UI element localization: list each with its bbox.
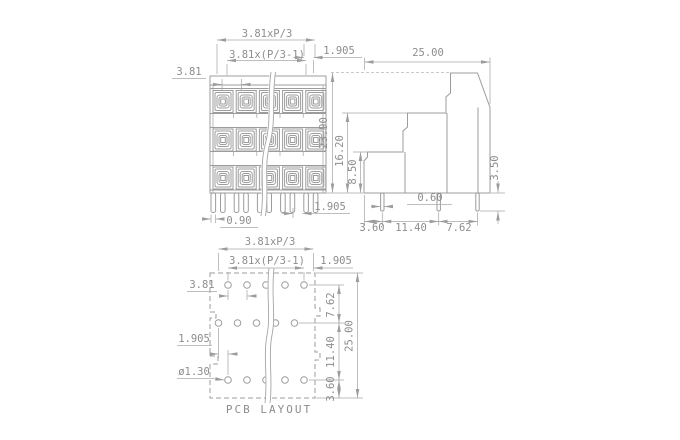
dim-front-pin-pair-offset: 1.905 — [314, 201, 346, 213]
dim-pcb-pitch-total: 3.81xP/3 — [245, 236, 296, 248]
dim-pcb-hole-diameter: ø1.30 — [178, 366, 210, 378]
dim-front-pitch: 3.81 — [176, 66, 201, 78]
dim-side-height-lower: 8.50 — [347, 159, 359, 184]
dim-pcb-row-gap-b: 11.40 — [325, 336, 337, 368]
pcb-layout-title: PCB LAYOUT — [226, 403, 312, 416]
dim-front-pitch-total: 3.81xP/3 — [242, 28, 293, 40]
dim-pcb-bottom-margin: 3.60 — [325, 376, 337, 401]
pcb-holes — [215, 282, 307, 384]
dim-pcb-depth-total: 25.00 — [344, 320, 356, 352]
dim-front-pitch-inner: 3.81x(P/3-1) — [229, 49, 305, 61]
side-view — [331, 73, 490, 212]
dim-side-pin-spacing-b: 7.62 — [446, 222, 471, 234]
dim-pcb-pitch: 3.81 — [189, 279, 214, 291]
dim-front-pin-width: 0.90 — [226, 215, 251, 227]
dim-pcb-row-gap-a: 7.62 — [325, 292, 337, 317]
dim-side-pin-to-edge: 3.60 — [359, 222, 384, 234]
dim-front-pin-row-offset: 1.905 — [323, 45, 355, 57]
dim-side-depth: 25.00 — [412, 47, 444, 59]
dim-side-height-total: 23.90 — [318, 117, 330, 149]
drawing-canvas: 3.81xP/3 3.81x(P/3-1) 3.81 1.905 0.90 1.… — [0, 0, 680, 440]
pcb-layout: PCB LAYOUT — [210, 268, 320, 416]
dim-pcb-edge-offset: 1.905 — [320, 255, 352, 267]
dim-side-height-middle: 16.20 — [334, 135, 346, 167]
side-view-dimensions: 25.00 23.90 16.20 8.50 3.50 0.60 3.60 11… — [318, 47, 505, 234]
technical-drawing: 3.81xP/3 3.81x(P/3-1) 3.81 1.905 0.90 1.… — [0, 0, 680, 440]
dim-pcb-pitch-inner: 3.81x(P/3-1) — [229, 255, 305, 267]
dim-side-pin-width: 0.60 — [417, 192, 442, 204]
dim-pcb-row-offset: 1.905 — [178, 333, 210, 345]
front-view — [210, 72, 326, 216]
dim-side-pin-length: 3.50 — [489, 155, 501, 180]
dim-side-pin-spacing-a: 11.40 — [395, 222, 427, 234]
